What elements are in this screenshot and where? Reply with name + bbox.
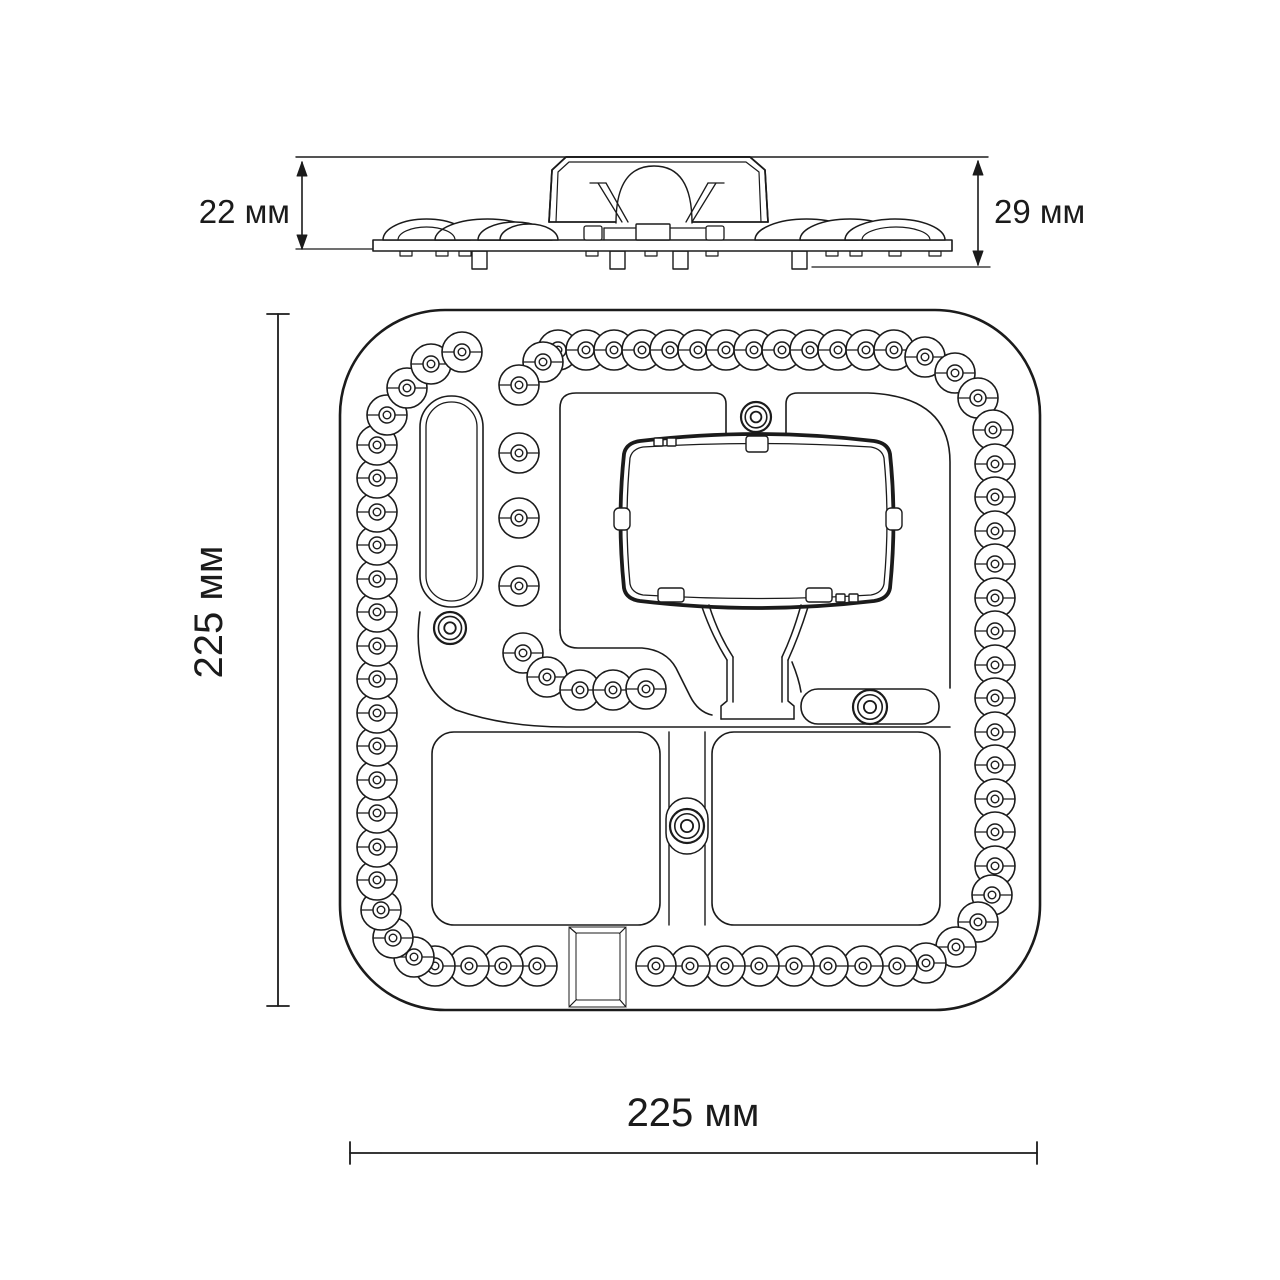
- side-height-right-label: 29 мм: [994, 193, 1085, 230]
- technical-drawing-page: 22 мм 29 мм 225 мм 225 мм: [0, 0, 1280, 1280]
- led-module-drawing: 22 мм 29 мм 225 мм 225 мм: [0, 0, 1280, 1280]
- top-view: [340, 310, 1040, 1010]
- side-view: [296, 157, 988, 269]
- plan-height-label: 225 мм: [187, 546, 231, 679]
- plan-width-label: 225 мм: [627, 1091, 760, 1135]
- side-height-left-label: 22 мм: [199, 193, 290, 230]
